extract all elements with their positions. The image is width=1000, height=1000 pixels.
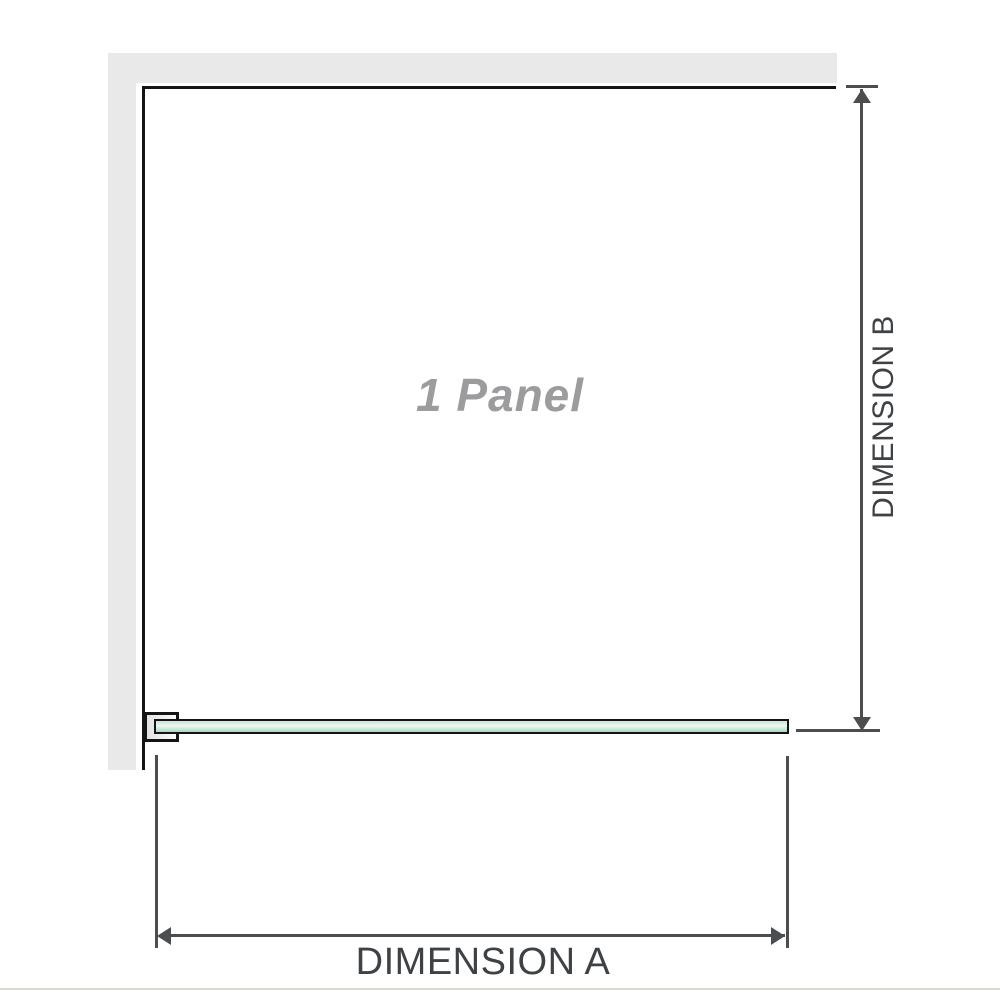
arrowhead-up-icon (853, 89, 871, 103)
dimension-a-line (160, 934, 785, 937)
dimension-b-top-tick (846, 85, 878, 88)
arrowhead-right-icon (771, 927, 785, 945)
panel-count-label: 1 Panel (290, 368, 710, 422)
dimension-a-label: DIMENSION A (233, 941, 733, 984)
dimension-a-left-extension (155, 755, 158, 948)
dimension-a-right-extension (786, 756, 789, 948)
glass-panel-bar (154, 719, 789, 734)
dimension-b-label: DIMENSION B (867, 315, 901, 519)
arrowhead-down-icon (853, 717, 871, 731)
arrowhead-left-icon (157, 927, 171, 945)
dimension-b-line (860, 89, 863, 728)
panel-area-outline (142, 86, 836, 770)
wall-top (108, 53, 837, 83)
wall-left (108, 53, 136, 770)
baseline-rule (0, 988, 1000, 990)
shower-panel-diagram: 1 Panel DIMENSION B DIMENSION A (0, 0, 1000, 1000)
